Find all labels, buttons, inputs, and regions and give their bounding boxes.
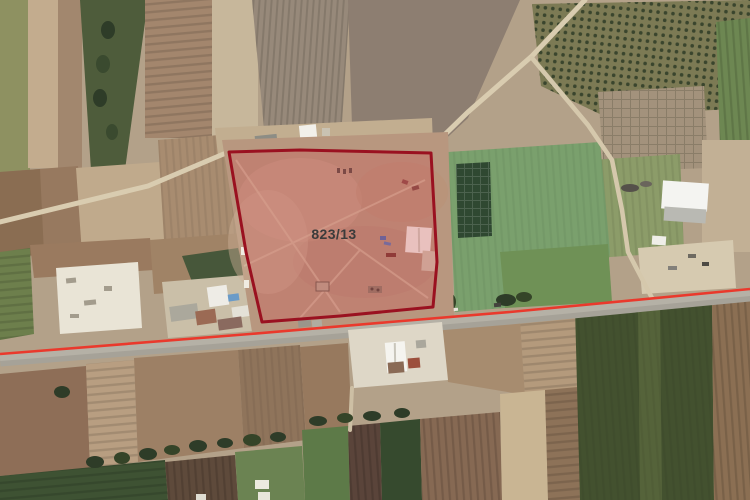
parcel-overlay: 823/13 xyxy=(229,150,437,322)
farmstead-south xyxy=(348,322,448,388)
parcel-label: 823/13 xyxy=(311,226,356,242)
satellite-map: 823/13 xyxy=(0,0,750,500)
satellite-map-viewport[interactable]: 823/13 xyxy=(0,0,750,500)
